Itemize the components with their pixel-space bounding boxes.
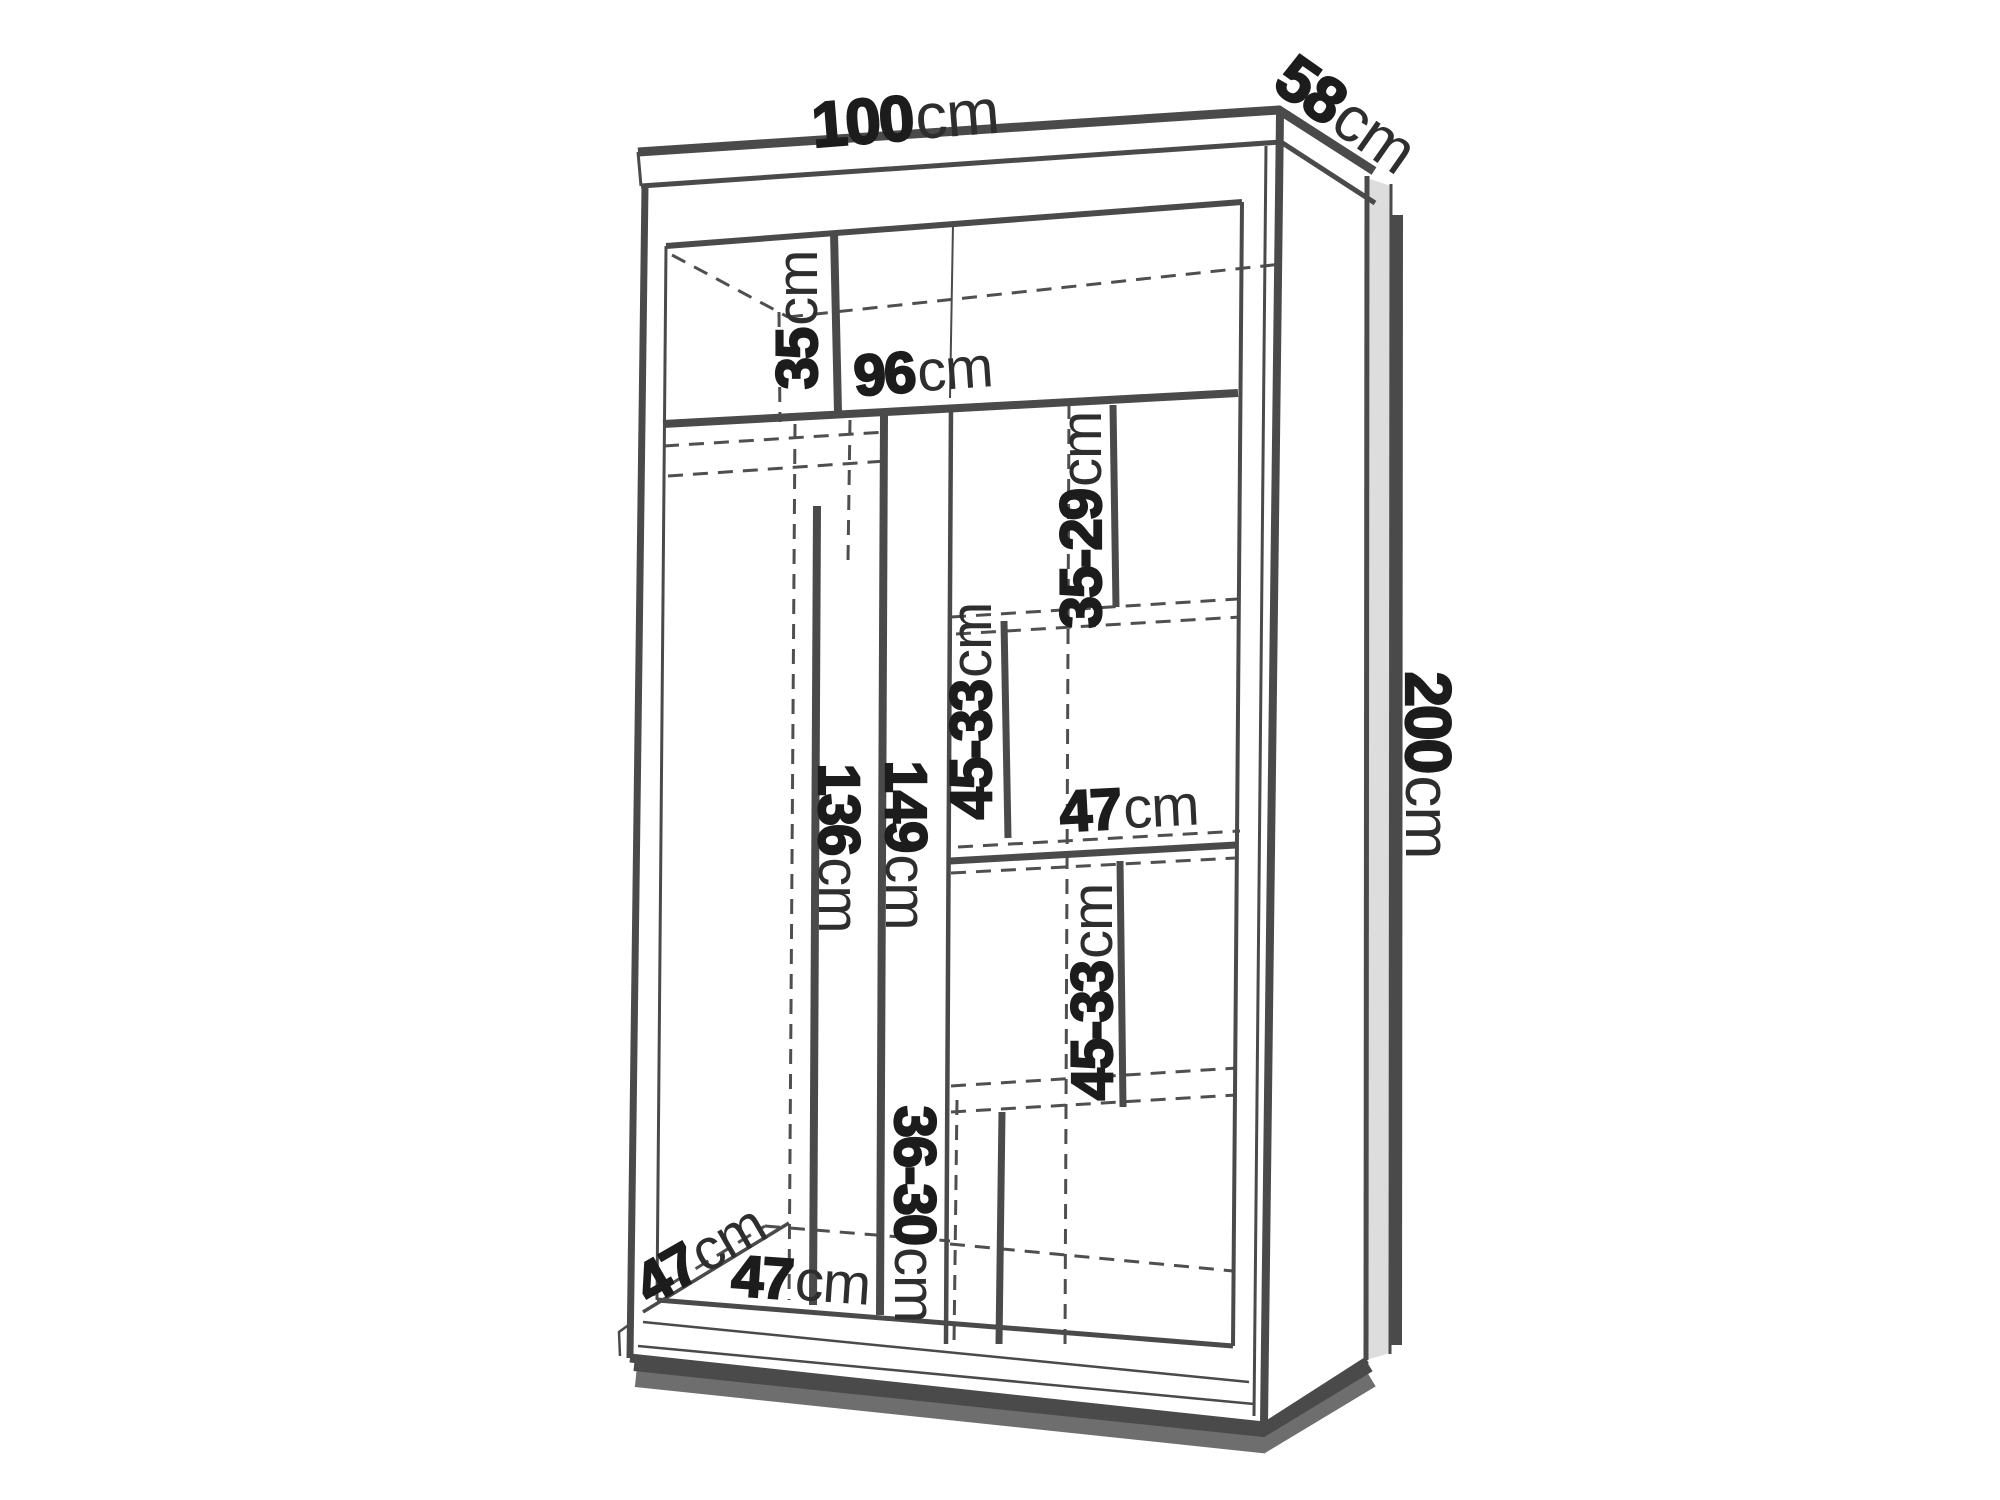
opening-top-edge: [666, 202, 1242, 246]
measure-bar-45-33-upper: [1004, 621, 1008, 838]
dim-label-interior-width: 96cm: [851, 334, 994, 409]
dim-label-shelf-width: 47cm: [1058, 772, 1200, 844]
top-compartment-divider: [834, 232, 838, 412]
divider-back-dash: [848, 420, 850, 560]
dim-label-bottom-gap: 36-30cm: [883, 1106, 948, 1323]
dash-measure-36-30: [954, 1100, 957, 1344]
floor-back-dash-right: [950, 1244, 1233, 1271]
right-inner-edge: [1233, 202, 1242, 1346]
wardrobe-dimension-diagram: 100cm 58cm 200cm 35cm 96cm 35-29cm 45-33…: [0, 0, 2000, 1500]
right-front-edge-outer: [1264, 114, 1280, 1424]
left-inner-edge: [657, 246, 666, 1300]
lid-left-cap: [638, 152, 641, 186]
hanging-rail-dash-1: [664, 432, 886, 446]
right-back-edge: [1366, 176, 1367, 1360]
measure-bar-36-30: [999, 1112, 1002, 1344]
fixed-shelf-47: [950, 845, 1236, 861]
dim-label-top-compartment-height: 35cm: [765, 251, 830, 390]
dash-measure-136: [789, 424, 795, 1300]
hanging-rail-dash-2: [668, 461, 886, 476]
interior-back-top-dash: [788, 264, 1282, 317]
side-panel-shade-band: [1366, 178, 1391, 1360]
right-back-edge-outer: [1390, 184, 1391, 1354]
dim-label-shelf-gap-3: 45-33cm: [1060, 884, 1125, 1101]
dim-label-shelf-gap-1: 35-29cm: [1049, 412, 1114, 629]
dim-label-overall-width: 100cm: [809, 75, 1001, 161]
dim-label-hanging-height-136: 136cm: [807, 763, 872, 932]
dim-label-overall-height: 200cm: [1392, 671, 1464, 858]
dimension-labels: 100cm 58cm 200cm 35cm 96cm 35-29cm 45-33…: [624, 40, 1464, 1322]
left-outer-edge: [630, 186, 645, 1358]
dim-label-shelf-gap-2: 45-33cm: [939, 603, 1004, 820]
dim-label-section-height-149: 149cm: [874, 760, 939, 929]
dim-label-overall-depth: 58cm: [1262, 40, 1429, 187]
dim-label-hanging-section-width: 47cm: [729, 1243, 872, 1318]
diagram-canvas: 100cm 58cm 200cm 35cm 96cm 35-29cm 45-33…: [0, 0, 2000, 1500]
